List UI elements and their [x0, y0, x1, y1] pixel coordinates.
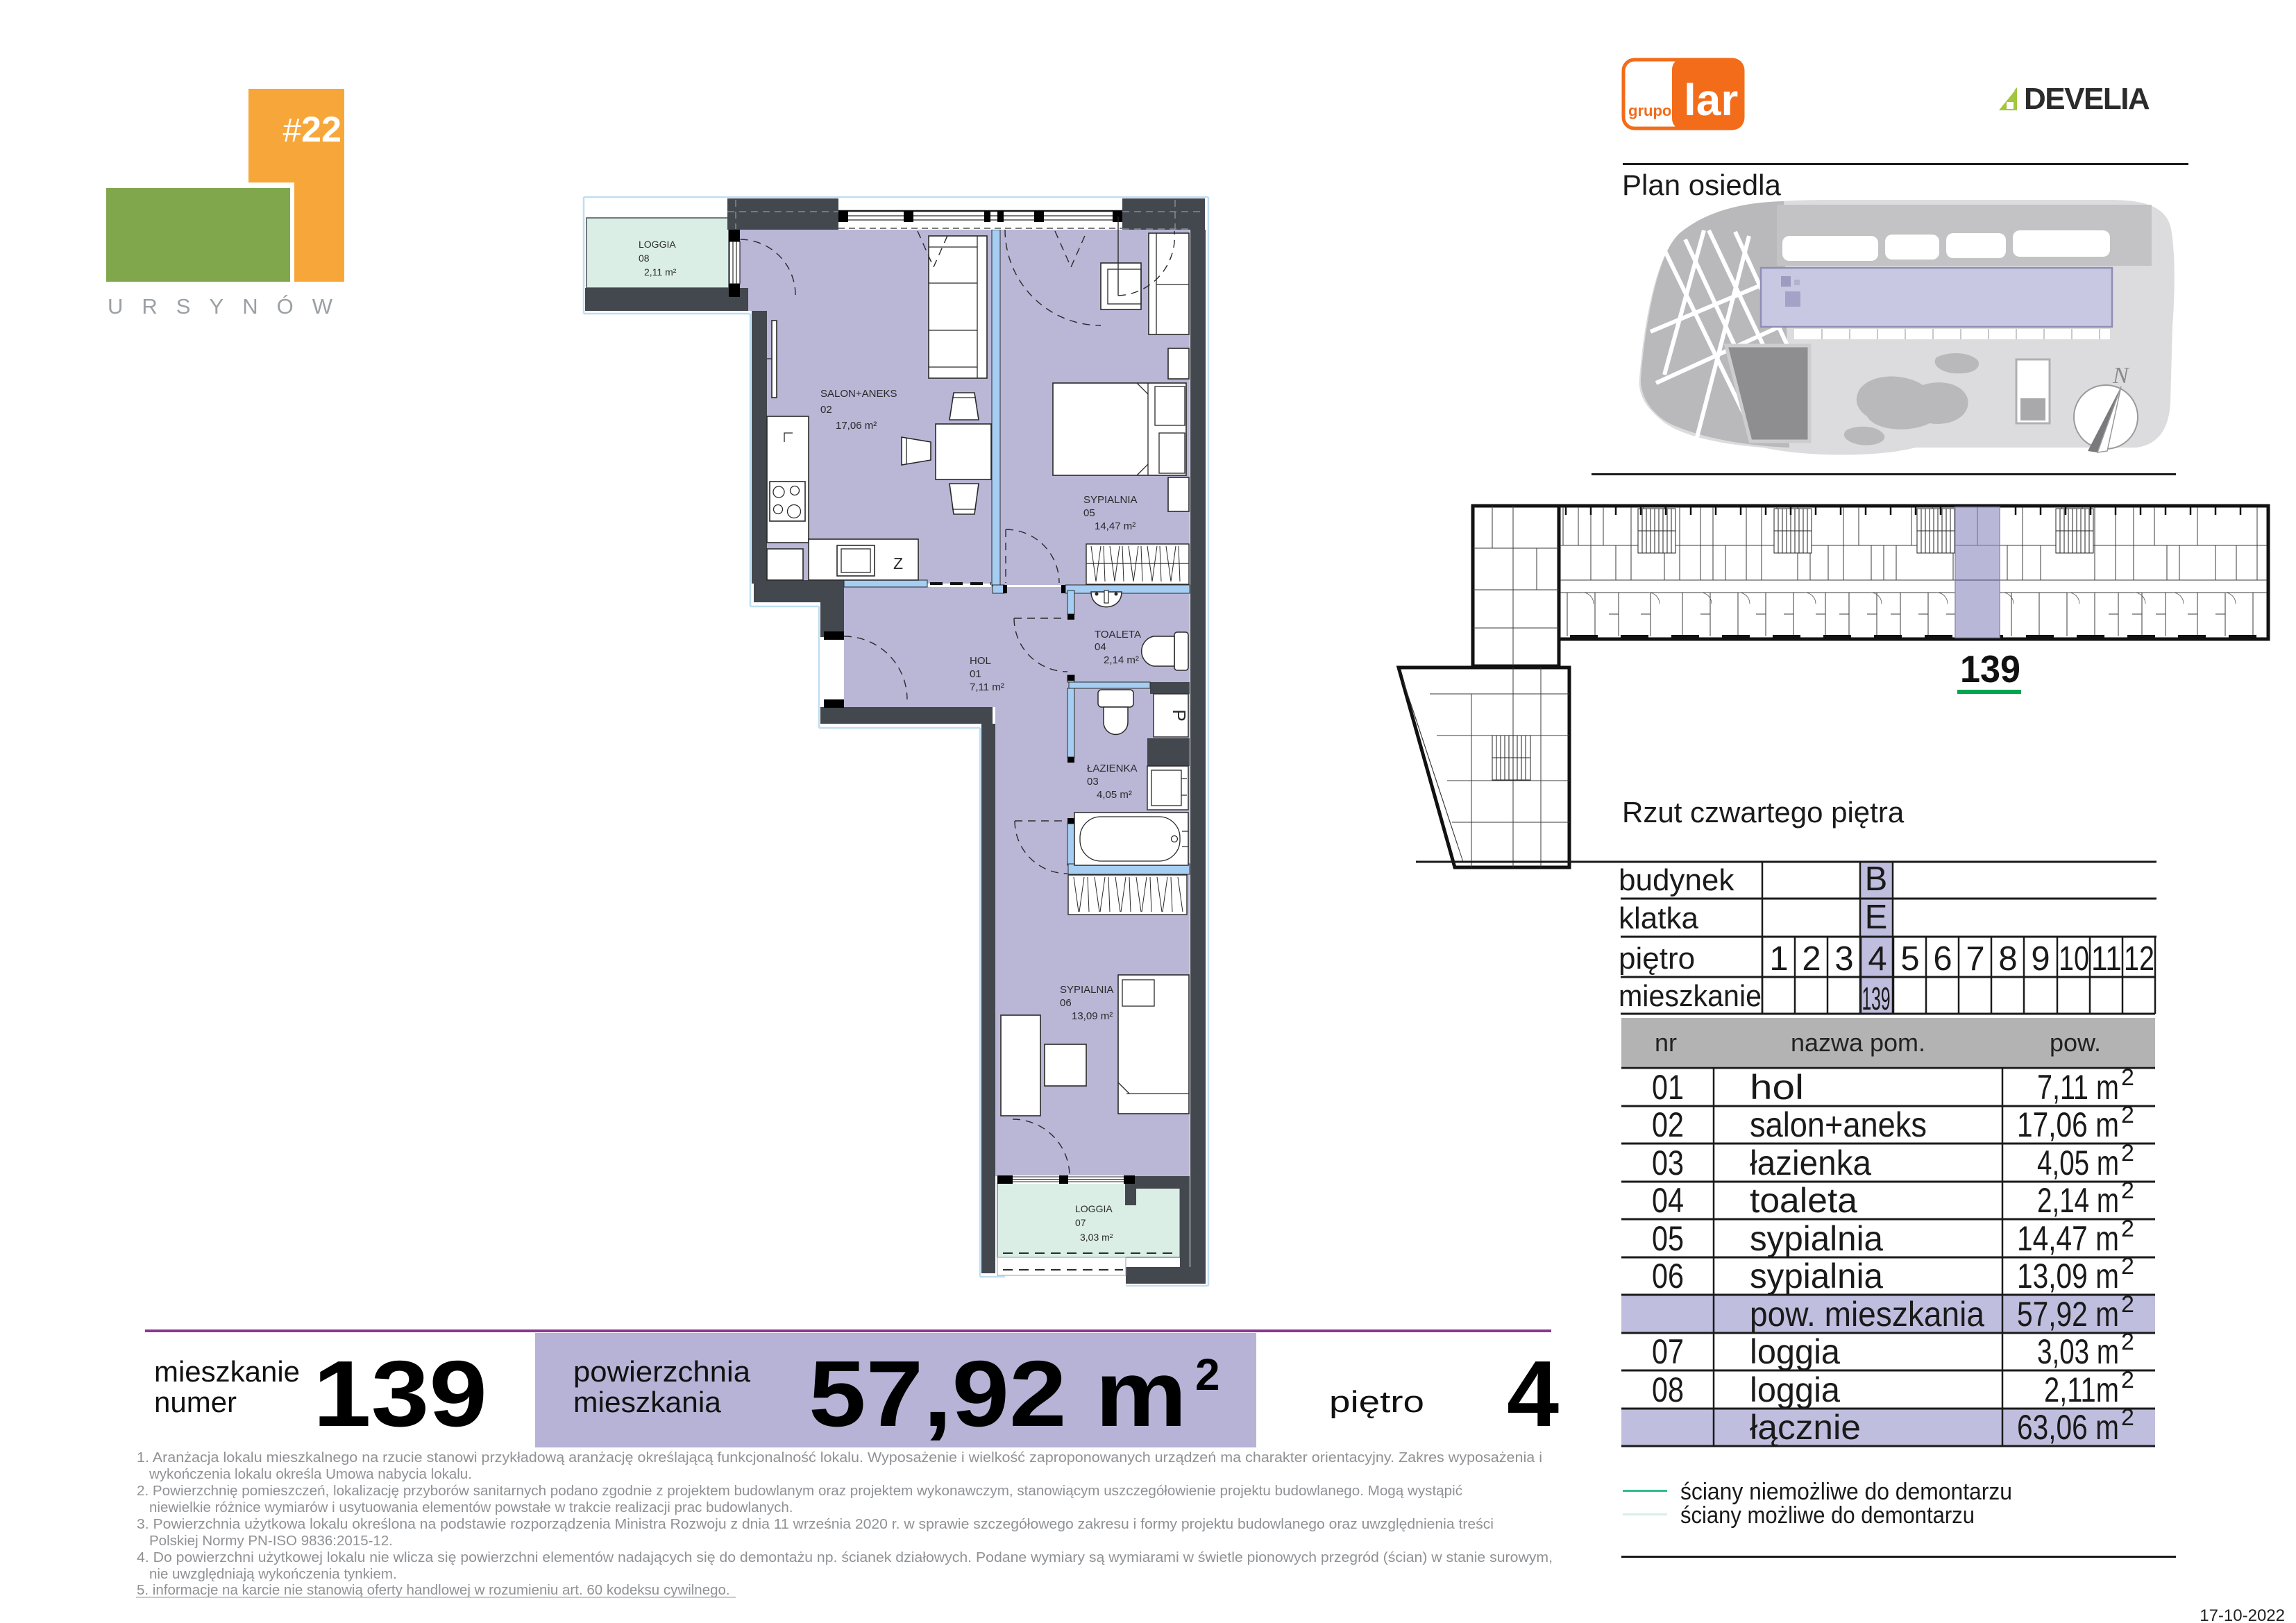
- svg-text:10: 10: [2059, 940, 2089, 978]
- svg-text:14,47 m²: 14,47 m²: [1095, 520, 1136, 532]
- svg-text:9: 9: [2031, 940, 2050, 978]
- svg-text:06: 06: [1060, 997, 1072, 1009]
- svg-text:1: 1: [1769, 940, 1788, 978]
- svg-text:4,05 m: 4,05 m: [2037, 1144, 2119, 1182]
- svg-text:klatka: klatka: [1619, 901, 1698, 935]
- svg-text:3,03 m²: 3,03 m²: [1080, 1232, 1113, 1243]
- svg-text:2: 2: [2121, 1216, 2134, 1242]
- svg-text:57,92 m: 57,92 m: [2017, 1295, 2119, 1334]
- svg-text:5. informacje na karcie nie st: 5. informacje na karcie nie stanowią ofe…: [137, 1582, 730, 1598]
- svg-text:01: 01: [970, 668, 981, 680]
- svg-text:piętro: piętro: [1329, 1385, 1424, 1419]
- svg-text:2: 2: [2121, 1178, 2134, 1204]
- svg-text:2. Powierzchnię pomieszczeń, l: 2. Powierzchnię pomieszczeń, lokalizację…: [137, 1483, 1462, 1499]
- svg-text:SYPIALNIA: SYPIALNIA: [1060, 984, 1114, 996]
- svg-text:2: 2: [2121, 1064, 2134, 1091]
- svg-text:toaleta: toaleta: [1750, 1181, 1857, 1220]
- svg-text:02: 02: [1652, 1105, 1684, 1144]
- svg-text:14,47 m: 14,47 m: [2017, 1219, 2119, 1258]
- svg-text:5: 5: [1900, 940, 1919, 978]
- svg-text:2,11m: 2,11m: [2044, 1370, 2119, 1409]
- svg-text:11: 11: [2091, 940, 2122, 978]
- svg-text:numer: numer: [154, 1386, 237, 1418]
- svg-text:139: 139: [1862, 980, 1891, 1017]
- svg-text:loggia: loggia: [1750, 1370, 1840, 1409]
- svg-text:2,14 m: 2,14 m: [2037, 1181, 2119, 1220]
- svg-text:17,06 m: 17,06 m: [2017, 1105, 2119, 1144]
- svg-text:07: 07: [1652, 1332, 1684, 1371]
- svg-text:LOGGIA: LOGGIA: [1075, 1203, 1113, 1214]
- svg-text:2: 2: [2121, 1140, 2134, 1166]
- svg-text:nr: nr: [1655, 1028, 1677, 1057]
- svg-text:pow.: pow.: [2050, 1028, 2101, 1057]
- svg-text:Polskiej Normy PN-ISO 9836:201: Polskiej Normy PN-ISO 9836:2015-12.: [149, 1533, 393, 1549]
- svg-text:ściany możliwe do demontarzu: ściany możliwe do demontarzu: [1680, 1502, 1975, 1529]
- svg-text:8: 8: [1998, 940, 2017, 978]
- svg-text:3,03 m: 3,03 m: [2037, 1332, 2119, 1371]
- svg-text:budynek: budynek: [1619, 863, 1734, 897]
- svg-text:sypialnia: sypialnia: [1750, 1257, 1883, 1295]
- svg-text:LOGGIA: LOGGIA: [639, 239, 676, 250]
- svg-text:ściany niemożliwe do demontarz: ściany niemożliwe do demontarzu: [1680, 1479, 2012, 1505]
- svg-text:2,14 m²: 2,14 m²: [1104, 654, 1139, 666]
- svg-text:4: 4: [1868, 940, 1886, 978]
- svg-text:2: 2: [2121, 1102, 2134, 1128]
- svg-text:SALON+ANEKS: SALON+ANEKS: [820, 388, 897, 400]
- svg-text:sypialnia: sypialnia: [1750, 1219, 1883, 1258]
- svg-text:P: P: [1169, 709, 1190, 721]
- svg-text:Z: Z: [893, 554, 903, 572]
- svg-text:05: 05: [1652, 1219, 1684, 1258]
- svg-text:2: 2: [2121, 1404, 2134, 1431]
- svg-text:57,92 m: 57,92 m: [809, 1341, 1187, 1446]
- svg-text:07: 07: [1075, 1217, 1086, 1228]
- svg-text:2: 2: [2121, 1291, 2134, 1318]
- svg-text:04: 04: [1652, 1181, 1684, 1220]
- svg-text:63,06 m: 63,06 m: [2017, 1408, 2119, 1447]
- svg-text:06: 06: [1652, 1257, 1684, 1295]
- svg-text:13,09 m: 13,09 m: [2017, 1257, 2119, 1295]
- svg-text:pow. mieszkania: pow. mieszkania: [1750, 1295, 1984, 1334]
- svg-text:13,09 m²: 13,09 m²: [1072, 1010, 1113, 1022]
- svg-text:05: 05: [1083, 507, 1095, 519]
- svg-text:nazwa pom.: nazwa pom.: [1791, 1028, 1925, 1057]
- svg-text:3: 3: [1834, 940, 1853, 978]
- svg-text:mieszkanie: mieszkanie: [154, 1355, 300, 1388]
- svg-text:08: 08: [639, 253, 650, 264]
- svg-text:HOL: HOL: [970, 655, 991, 667]
- svg-text:nie uwzględniają wykończenia t: nie uwzględniają wykończenia tynkiem.: [149, 1566, 397, 1582]
- svg-text:1. Aranżacja lokalu mieszkalne: 1. Aranżacja lokalu mieszkalnego na rzuc…: [137, 1450, 1542, 1465]
- svg-text:7: 7: [1966, 940, 1984, 978]
- svg-text:salon+aneks: salon+aneks: [1750, 1105, 1927, 1144]
- svg-text:lar: lar: [1684, 75, 1738, 125]
- svg-text:grupo: grupo: [1628, 102, 1671, 119]
- svg-text:17-10-2022: 17-10-2022: [2200, 1606, 2285, 1623]
- svg-text:139: 139: [313, 1341, 487, 1446]
- svg-text:2: 2: [2121, 1253, 2134, 1280]
- svg-text:4: 4: [1507, 1341, 1559, 1446]
- svg-text:mieszkanie: mieszkanie: [1619, 979, 1762, 1013]
- svg-text:3. Powierzchnia użytkowa lokal: 3. Powierzchnia użytkowa lokalu określon…: [137, 1516, 1494, 1532]
- svg-text:12: 12: [2124, 940, 2154, 978]
- svg-text:2: 2: [2121, 1367, 2134, 1393]
- svg-text:mieszkania: mieszkania: [573, 1386, 722, 1418]
- svg-text:02: 02: [820, 404, 832, 416]
- svg-text:powierzchnia: powierzchnia: [573, 1355, 751, 1388]
- svg-text:2,11 m²: 2,11 m²: [644, 266, 677, 278]
- svg-text:2: 2: [1802, 940, 1821, 978]
- svg-text:Rzut czwartego piętra: Rzut czwartego piętra: [1622, 796, 1905, 829]
- svg-text:B: B: [1865, 860, 1888, 898]
- svg-text:niewielkie różnice wymiarów i: niewielkie różnice wymiarów i usytuowani…: [149, 1499, 793, 1515]
- svg-text:2: 2: [1195, 1350, 1220, 1400]
- svg-text:17,06 m²: 17,06 m²: [836, 420, 877, 432]
- svg-text:Plan osiedla: Plan osiedla: [1622, 169, 1781, 201]
- svg-text:03: 03: [1652, 1144, 1684, 1182]
- svg-text:6: 6: [1933, 940, 1952, 978]
- svg-text:4. Do powierzchni użytkowej lo: 4. Do powierzchni użytkowej lokalu nie w…: [137, 1549, 1553, 1565]
- svg-text:TOALETA: TOALETA: [1095, 629, 1141, 640]
- svg-text:139: 139: [1960, 647, 2020, 690]
- svg-text:04: 04: [1095, 641, 1106, 653]
- svg-text:7,11 m: 7,11 m: [2037, 1068, 2119, 1107]
- svg-text:08: 08: [1652, 1370, 1684, 1409]
- svg-text:2: 2: [2121, 1329, 2134, 1355]
- svg-text:ŁAZIENKA: ŁAZIENKA: [1087, 763, 1138, 774]
- svg-text:E: E: [1865, 899, 1888, 936]
- svg-text:URSYNÓW: URSYNÓW: [108, 294, 352, 318]
- svg-text:łącznie: łącznie: [1750, 1408, 1861, 1447]
- svg-text:4,05 m²: 4,05 m²: [1097, 789, 1132, 801]
- svg-text:piętro: piętro: [1619, 942, 1695, 976]
- svg-text:łazienka: łazienka: [1750, 1144, 1871, 1182]
- svg-text:DEVELIA: DEVELIA: [2024, 82, 2150, 116]
- svg-text:01: 01: [1652, 1068, 1684, 1107]
- svg-text:N: N: [2112, 363, 2130, 389]
- svg-text:#22: #22: [282, 110, 341, 150]
- svg-text:loggia: loggia: [1750, 1332, 1840, 1371]
- svg-text:wykończenia lokalu określa Umo: wykończenia lokalu określa Umowa nabycia…: [149, 1466, 472, 1482]
- svg-text:SYPIALNIA: SYPIALNIA: [1083, 494, 1138, 506]
- svg-text:7,11 m²: 7,11 m²: [970, 681, 1004, 693]
- svg-text:03: 03: [1087, 776, 1099, 788]
- svg-text:hol: hol: [1750, 1068, 1804, 1107]
